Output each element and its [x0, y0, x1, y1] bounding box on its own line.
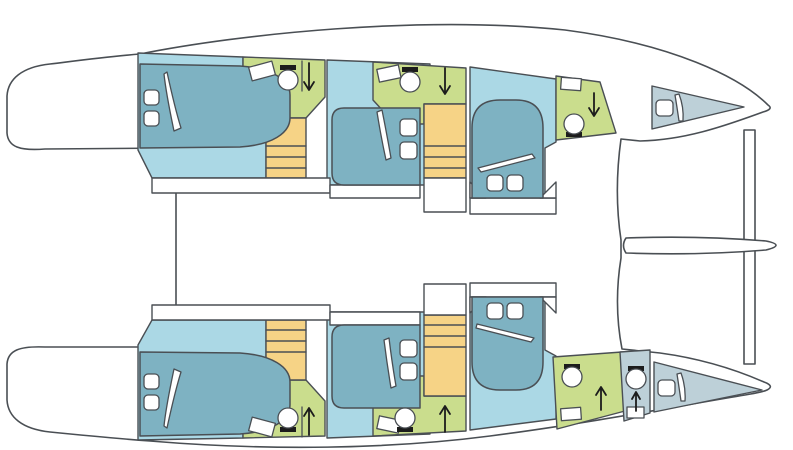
- locker-box: [424, 178, 466, 212]
- locker-box: [330, 312, 420, 325]
- locker-box: [330, 185, 420, 198]
- locker-box: [470, 283, 556, 297]
- pillow-icon: [658, 380, 675, 396]
- pillow-icon: [144, 374, 159, 389]
- sink-icon: [561, 407, 582, 420]
- toilet-icon: [626, 369, 646, 389]
- locker-box: [152, 305, 330, 320]
- stairs-top-mid: [424, 104, 466, 178]
- toilet-icon: [278, 408, 298, 428]
- locker-box: [470, 198, 556, 214]
- pillow-icon: [507, 303, 523, 319]
- pillow-icon: [144, 395, 159, 410]
- pillow-icon: [656, 100, 673, 116]
- pillow-icon: [487, 303, 503, 319]
- plan-root: [7, 25, 776, 448]
- pillow-icon: [144, 111, 159, 126]
- pillow-icon: [400, 340, 417, 357]
- toilet-icon: [395, 408, 415, 428]
- toilet-icon: [278, 70, 298, 90]
- toilet-tank: [280, 65, 296, 70]
- toilet-icon: [562, 367, 582, 387]
- locker-box: [424, 284, 466, 315]
- pillow-icon: [507, 175, 523, 191]
- toilet-tank: [402, 67, 418, 72]
- deck-plan-svg: [0, 0, 793, 450]
- pillow-icon: [400, 119, 417, 136]
- pillow-icon: [487, 175, 503, 191]
- pillow-icon: [144, 90, 159, 105]
- sink-icon: [561, 77, 582, 90]
- stairs-bottom-mid: [424, 315, 466, 396]
- locker-box: [152, 178, 330, 193]
- bowsprit-blade: [624, 237, 777, 254]
- pillow-icon: [400, 142, 417, 159]
- pillow-icon: [400, 363, 417, 380]
- catamaran-deck-plan: [0, 0, 793, 450]
- toilet-icon: [400, 72, 420, 92]
- toilet-icon: [564, 114, 584, 134]
